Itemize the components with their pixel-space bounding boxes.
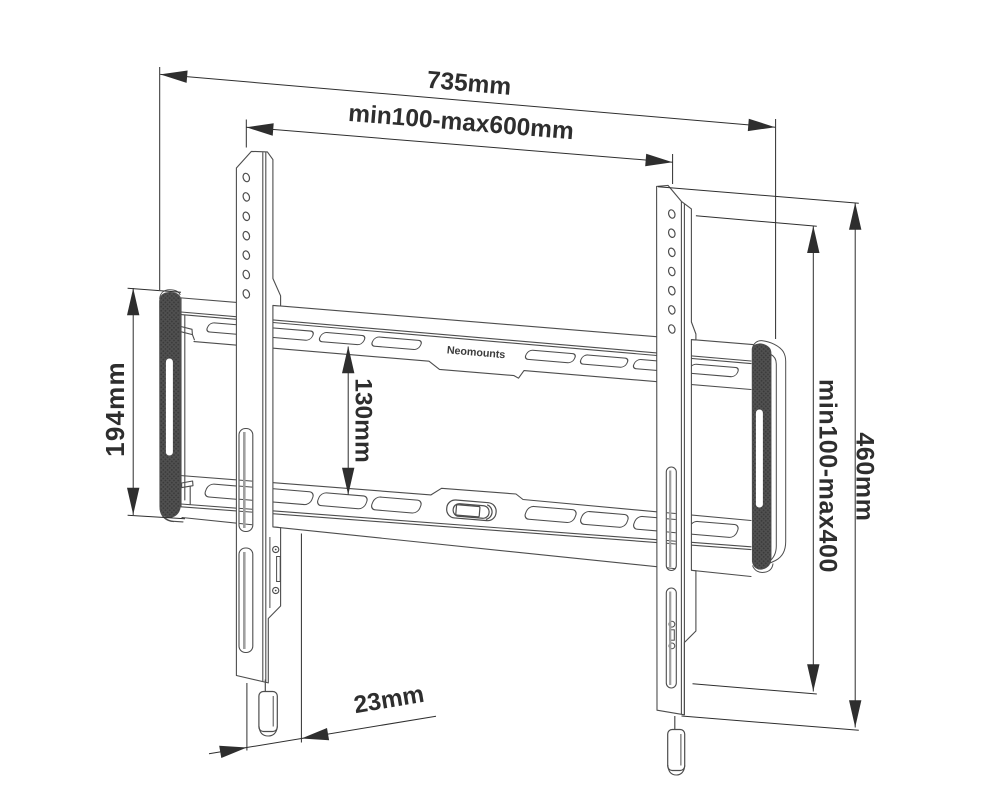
svg-text:460mm: 460mm	[851, 432, 879, 521]
svg-text:min100-max400: min100-max400	[814, 379, 842, 573]
svg-text:194mm: 194mm	[100, 361, 130, 457]
svg-text:130mm: 130mm	[349, 378, 376, 462]
